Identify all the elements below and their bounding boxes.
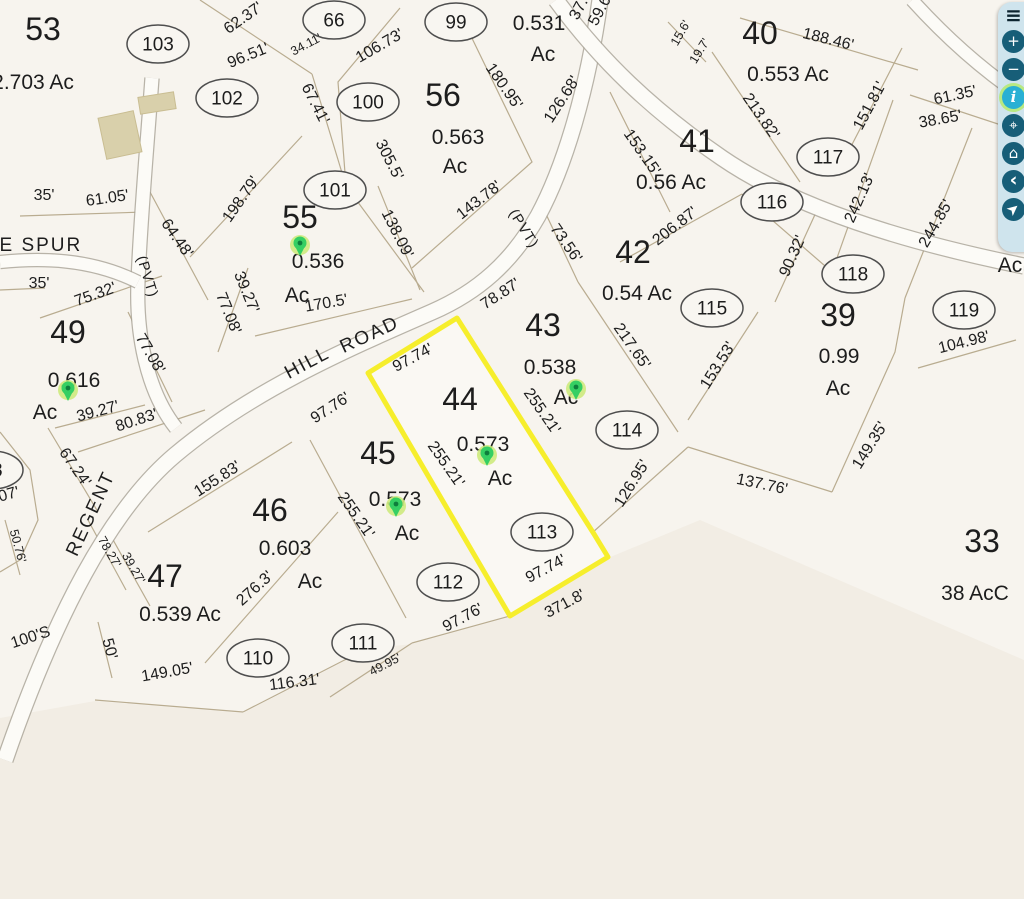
back-icon: ‹: [1010, 171, 1018, 190]
acreage-label: Ac: [488, 467, 513, 490]
lot-point-number: 100: [352, 93, 384, 114]
home-icon: ⌂: [1009, 146, 1019, 161]
lot-point-number: 66: [323, 11, 344, 32]
lot-point-number: 110: [243, 649, 273, 670]
zoom-in-icon: +: [1007, 34, 1020, 49]
acreage-label: 0.538: [524, 356, 577, 379]
lot-point-number: 08: [0, 461, 3, 482]
acreage-label: Ac: [443, 155, 468, 178]
lot-point-number: 118: [838, 265, 868, 286]
acreage-label: 0.553 Ac: [747, 63, 829, 86]
acreage-label: Ac: [826, 377, 851, 400]
pin-dot: [298, 241, 303, 246]
pin-dot: [66, 386, 71, 391]
lot-point-number: 102: [211, 89, 243, 110]
acreage-label: Ac: [33, 401, 58, 424]
lot-number-label: 53: [25, 11, 61, 47]
acreage-label: 0.539 Ac: [139, 603, 221, 626]
lot-number-label: 39: [820, 297, 856, 333]
navigate-icon: ➤: [1004, 200, 1023, 220]
lot-number-label: 46: [252, 492, 288, 528]
lot-point-number: 115: [697, 299, 727, 320]
lot-point-number: 114: [612, 421, 643, 442]
pin-dot: [574, 385, 579, 390]
lot-number-label: 40: [742, 15, 778, 51]
pin-dot: [485, 451, 490, 456]
dimension-label: 35': [34, 187, 55, 204]
info-icon: i: [1011, 90, 1017, 105]
lot-point-number: 101: [319, 181, 351, 202]
acreage-label: 0.603: [259, 537, 312, 560]
pin-dot: [394, 502, 399, 507]
lot-number-label: 44: [442, 381, 478, 417]
dimension-label: 35': [29, 275, 50, 292]
acreage-label: Ac: [395, 522, 420, 545]
lot-point-number: 111: [349, 634, 378, 655]
acreage-label: 38 AcC: [941, 582, 1009, 605]
lot-point-number: 119: [949, 301, 979, 322]
acreage-label: 0.563: [432, 126, 485, 149]
lot-point-number: 113: [527, 523, 557, 544]
lot-number-label: 47: [147, 558, 183, 594]
parcel-map-viewer: 1031026699100101117116118115119114113112…: [0, 0, 1024, 899]
home-button[interactable]: ⌂: [1002, 142, 1024, 165]
map-toolbar: ≡+−i⌖⌂‹➤: [998, 2, 1024, 252]
lot-number-label: 43: [525, 307, 561, 343]
acreage-label: Ac: [531, 43, 556, 66]
zoom-out-icon: −: [1007, 62, 1020, 77]
parcel-map-canvas[interactable]: 1031026699100101117116118115119114113112…: [0, 0, 1024, 899]
locate-icon: ⌖: [1009, 118, 1017, 133]
menu-icon: ≡: [1005, 5, 1022, 25]
acreage-label: 0.99: [819, 345, 860, 368]
lot-number-label: 45: [360, 435, 396, 471]
zoom-out-button[interactable]: −: [1002, 58, 1024, 81]
lot-number-label: 42: [615, 234, 651, 270]
lot-number-label: 41: [679, 123, 715, 159]
acreage-label: 0.54 Ac: [602, 282, 672, 305]
acreage-label: 0.56 Ac: [636, 171, 706, 194]
lot-point-number: 112: [433, 573, 463, 594]
back-button[interactable]: ‹: [1002, 170, 1024, 193]
info-button[interactable]: i: [1002, 86, 1024, 109]
navigate-button[interactable]: ➤: [1002, 198, 1024, 221]
lot-number-label: 49: [50, 314, 86, 350]
lot-number-label: 56: [425, 77, 461, 113]
lot-point-number: 103: [142, 35, 174, 56]
acreage-label: 2.703 Ac: [0, 71, 74, 94]
lot-point-number: 117: [813, 148, 843, 169]
menu-icon[interactable]: ≡: [1002, 5, 1024, 25]
locate-button[interactable]: ⌖: [1002, 114, 1024, 137]
zoom-in-button[interactable]: +: [1002, 30, 1024, 53]
lot-number-label: 55: [282, 199, 318, 235]
lot-point-number: 99: [445, 13, 466, 34]
road-name-label: HE SPUR: [0, 235, 82, 256]
acreage-label: Ac: [998, 254, 1023, 277]
acreage-label: 0.531: [513, 12, 566, 35]
acreage-label: Ac: [298, 570, 323, 593]
lot-number-label: 33: [964, 523, 1000, 559]
lot-point-number: 116: [757, 193, 787, 214]
